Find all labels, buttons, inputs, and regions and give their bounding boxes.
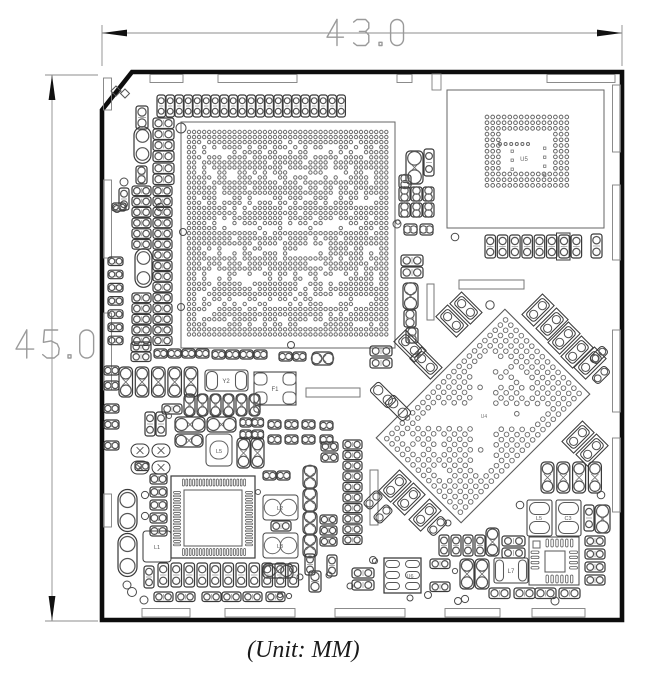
svg-text:(Unit: MM): (Unit: MM)	[247, 637, 360, 663]
svg-text:U6: U6	[406, 574, 413, 580]
svg-text:L5: L5	[216, 449, 222, 455]
svg-text:C3: C3	[564, 516, 571, 522]
svg-text:F1: F1	[271, 387, 279, 393]
svg-text:U4: U4	[481, 414, 488, 420]
svg-text:L2: L2	[277, 506, 283, 512]
svg-text:L1: L1	[154, 545, 160, 551]
svg-text:L5: L5	[536, 516, 542, 522]
svg-text:L3: L3	[277, 544, 283, 550]
svg-text:U5: U5	[520, 157, 528, 163]
svg-text:L7: L7	[508, 569, 515, 575]
svg-text:Y2: Y2	[222, 379, 230, 385]
